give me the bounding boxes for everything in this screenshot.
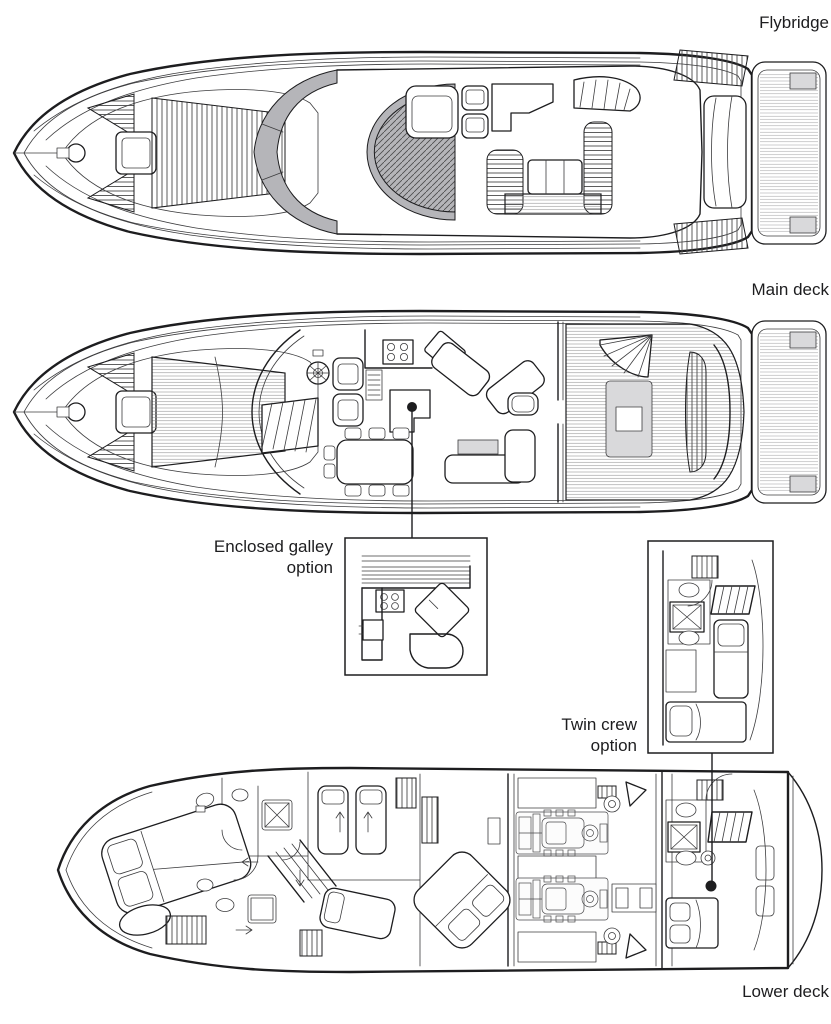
crew-bed (666, 898, 718, 948)
transom-bench (686, 352, 707, 472)
galley-option-label: Enclosed galley option (214, 536, 333, 578)
flybridge-plan (14, 50, 826, 254)
main-deck-plan (14, 311, 826, 513)
crew-option-inset (648, 541, 773, 753)
wardrobe (396, 778, 416, 808)
aft-sunpad (704, 96, 746, 208)
yacht-deck-plans: Flybridge Main deck Lower deck Enclosed … (0, 0, 831, 1024)
wardrobe (422, 797, 438, 843)
crew-option-label: Twin crew option (561, 714, 637, 756)
lower-deck-plan (58, 768, 822, 972)
generator (612, 884, 656, 912)
deck-label-main: Main deck (752, 279, 829, 300)
wardrobe (697, 780, 723, 800)
cockpit (566, 324, 744, 500)
crew-option-label-line2: option (561, 735, 637, 756)
deck-label-lower: Lower deck (742, 981, 829, 1002)
crew-callout-dot (706, 881, 717, 892)
deck-plan-drawing (0, 0, 831, 1024)
crew-option-label-line1: Twin crew (561, 714, 637, 735)
galley-option-label-line2: option (214, 557, 333, 578)
floor-grating (166, 916, 206, 944)
galley-option-inset (345, 538, 487, 675)
inset-berth-right (714, 620, 748, 698)
galley-callout-dot (407, 402, 417, 412)
companionway-stairs (262, 398, 318, 453)
galley-option-label-line1: Enclosed galley (214, 536, 333, 557)
deck-label-flybridge: Flybridge (759, 12, 829, 33)
inset-berth-bottom (666, 702, 746, 742)
